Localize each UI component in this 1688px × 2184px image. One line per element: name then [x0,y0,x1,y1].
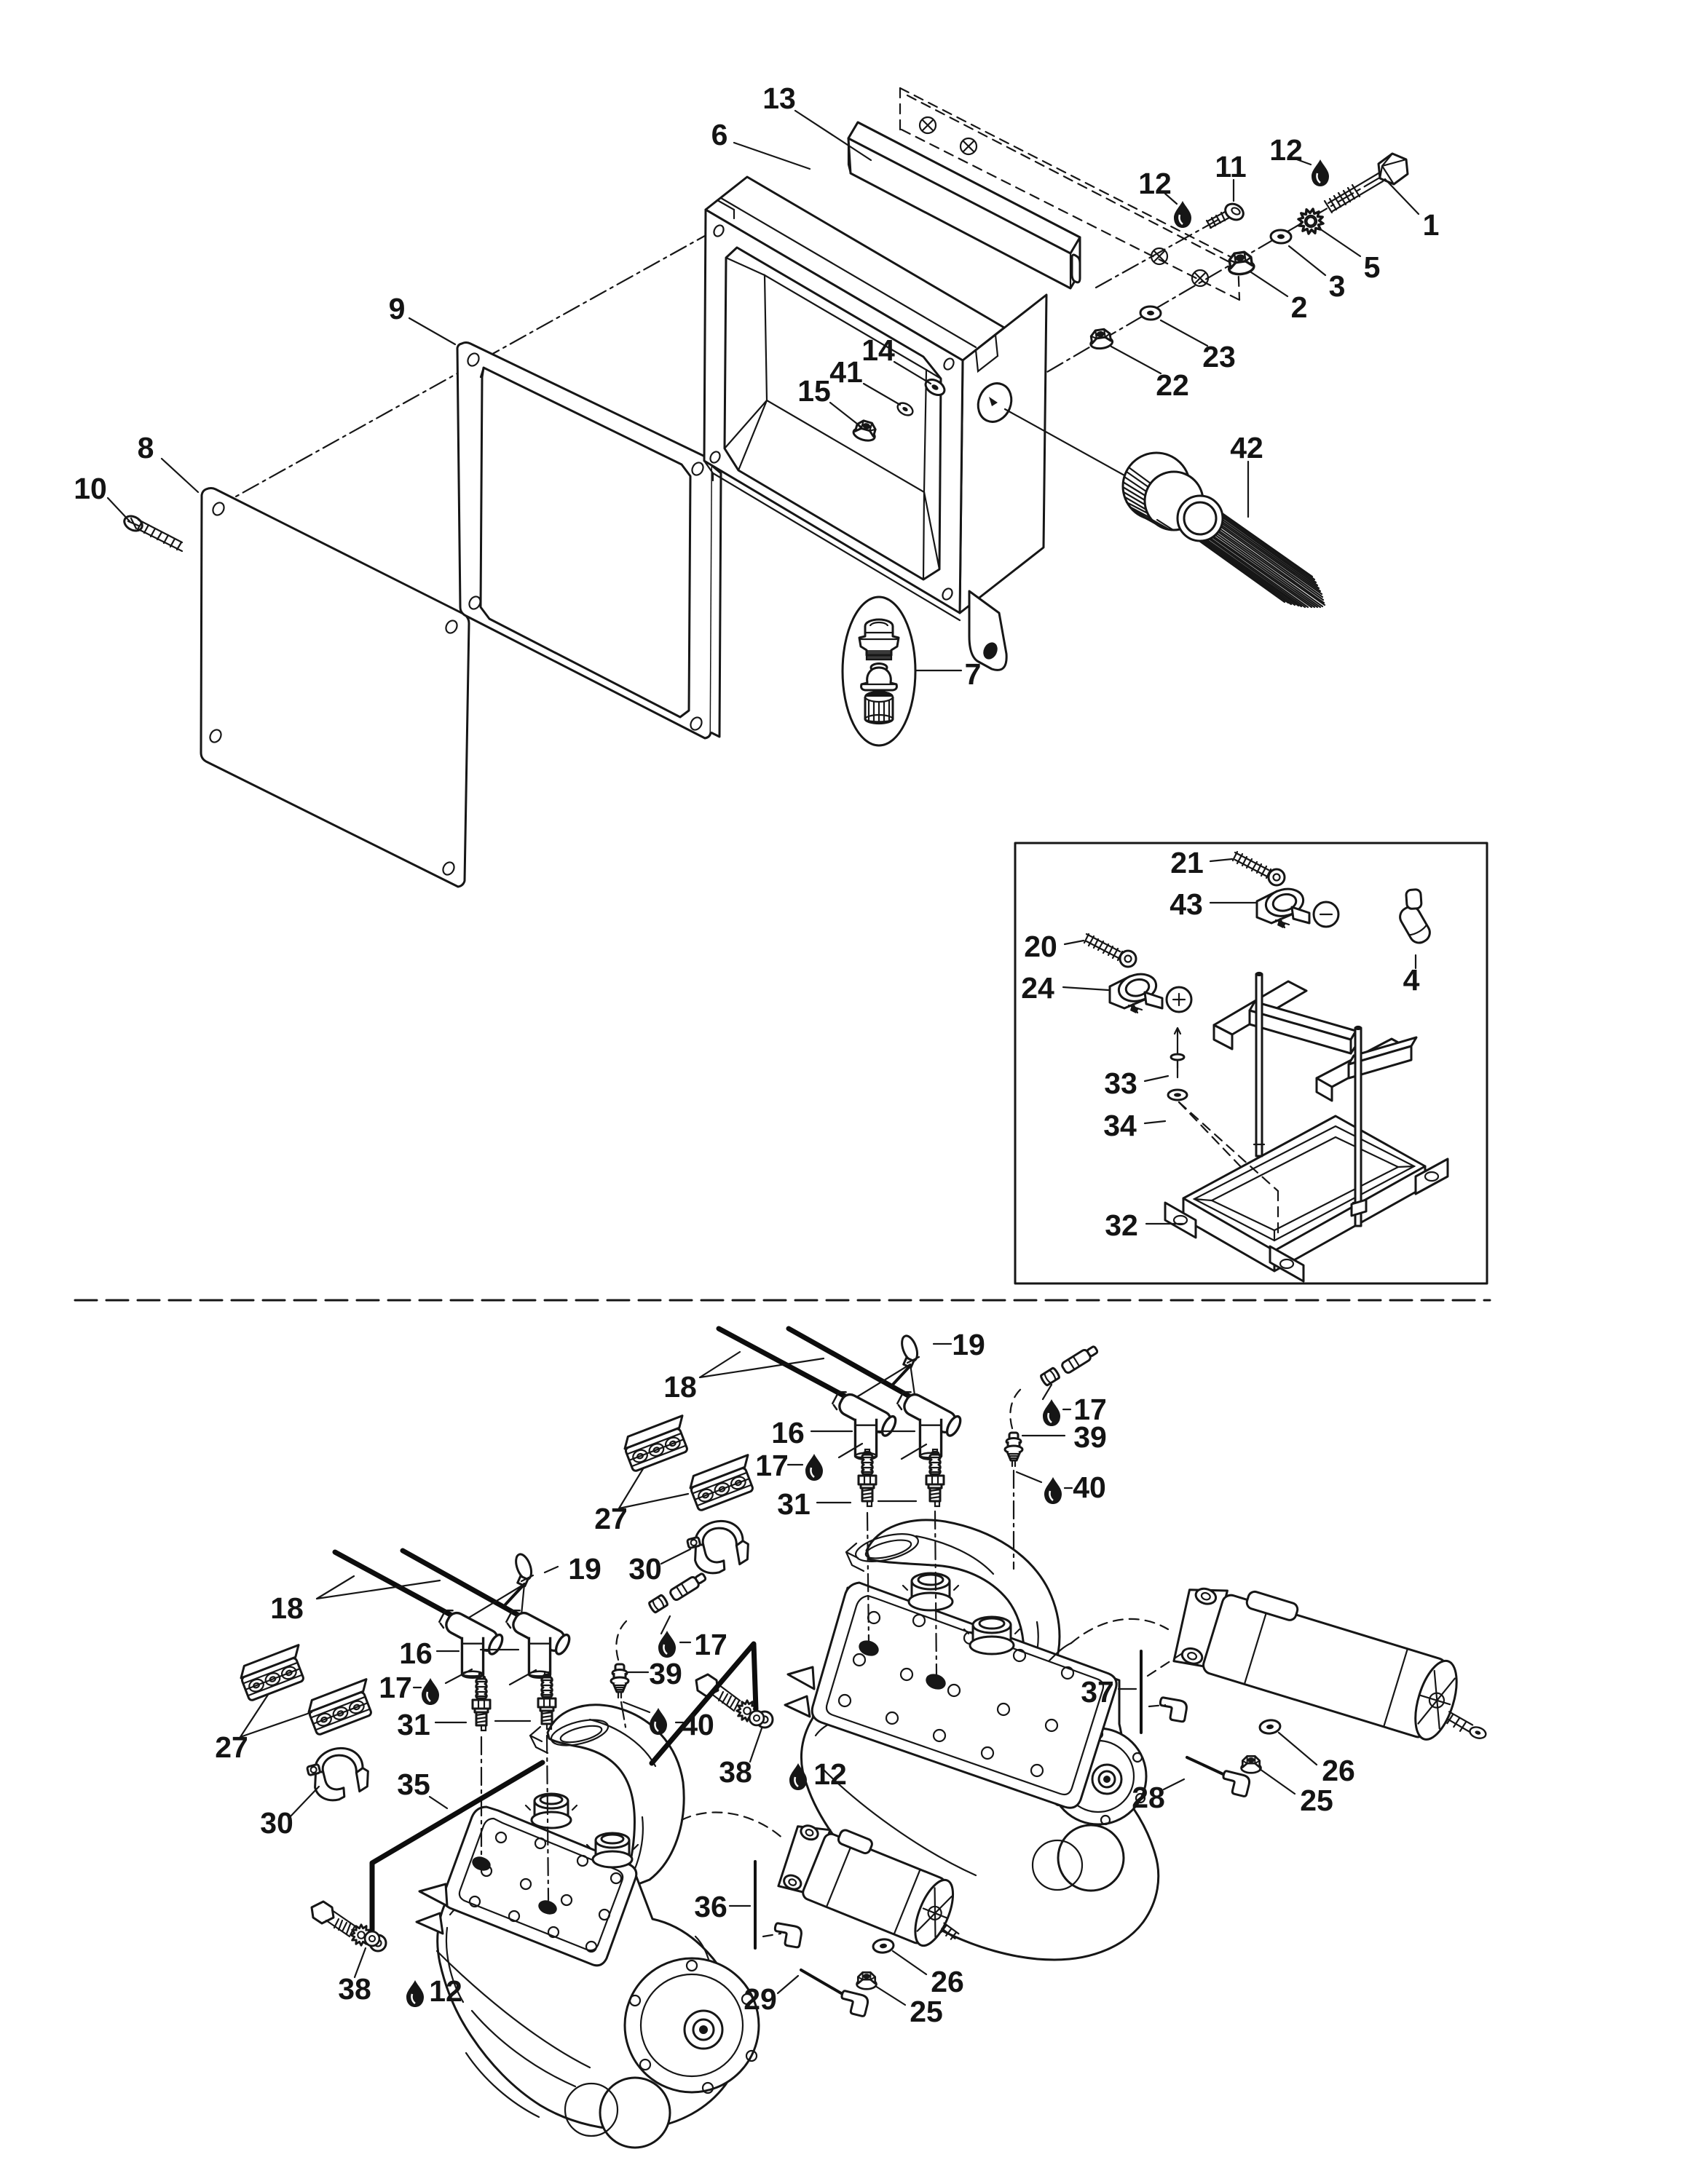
svg-text:16: 16 [399,1637,433,1670]
svg-text:19: 19 [952,1328,985,1361]
svg-text:10: 10 [74,472,107,505]
svg-text:12: 12 [429,1974,462,2008]
svg-text:36: 36 [694,1890,727,1923]
svg-text:2: 2 [1291,290,1308,324]
svg-text:14: 14 [861,333,895,367]
svg-text:17: 17 [379,1671,412,1704]
svg-text:5: 5 [1364,250,1381,284]
svg-text:40: 40 [681,1708,714,1741]
svg-text:32: 32 [1105,1208,1138,1242]
svg-text:22: 22 [1156,368,1189,402]
svg-text:18: 18 [270,1591,304,1625]
svg-text:17: 17 [694,1628,727,1661]
svg-text:18: 18 [663,1370,697,1404]
svg-text:21: 21 [1170,846,1204,879]
svg-text:35: 35 [397,1768,430,1801]
svg-text:20: 20 [1024,930,1057,963]
svg-text:16: 16 [771,1416,805,1449]
svg-text:27: 27 [594,1502,628,1535]
svg-text:38: 38 [719,1755,752,1789]
svg-text:30: 30 [628,1552,662,1586]
svg-text:19: 19 [568,1552,602,1586]
svg-text:23: 23 [1202,340,1236,373]
svg-text:15: 15 [797,374,831,408]
svg-text:1: 1 [1423,208,1440,242]
svg-text:26: 26 [1322,1754,1355,1787]
svg-text:41: 41 [829,355,863,389]
svg-text:38: 38 [338,1972,371,2006]
svg-text:31: 31 [397,1708,430,1741]
svg-text:9: 9 [389,292,406,325]
svg-text:27: 27 [215,1730,248,1764]
svg-text:17: 17 [755,1449,789,1482]
svg-text:26: 26 [931,1965,964,1998]
svg-text:12: 12 [1269,133,1303,167]
svg-text:12: 12 [813,1757,847,1791]
svg-text:11: 11 [1215,150,1246,183]
svg-text:7: 7 [965,657,982,691]
svg-text:25: 25 [910,1995,943,2028]
svg-text:8: 8 [138,431,154,464]
svg-text:3: 3 [1329,269,1346,303]
svg-text:31: 31 [777,1487,811,1521]
svg-text:34: 34 [1103,1109,1137,1142]
svg-text:25: 25 [1300,1784,1333,1817]
svg-text:42: 42 [1230,431,1263,464]
svg-text:40: 40 [1073,1471,1106,1504]
svg-text:13: 13 [762,82,796,115]
svg-text:24: 24 [1021,971,1054,1005]
svg-text:39: 39 [649,1657,682,1690]
svg-text:39: 39 [1073,1420,1107,1454]
svg-text:28: 28 [1132,1781,1165,1814]
svg-text:43: 43 [1170,887,1203,921]
svg-text:37: 37 [1081,1675,1114,1709]
svg-text:4: 4 [1403,963,1420,997]
svg-text:33: 33 [1104,1067,1137,1100]
svg-text:30: 30 [260,1806,293,1840]
svg-text:12: 12 [1138,167,1172,200]
svg-text:29: 29 [744,1982,777,2016]
svg-text:6: 6 [711,118,728,151]
